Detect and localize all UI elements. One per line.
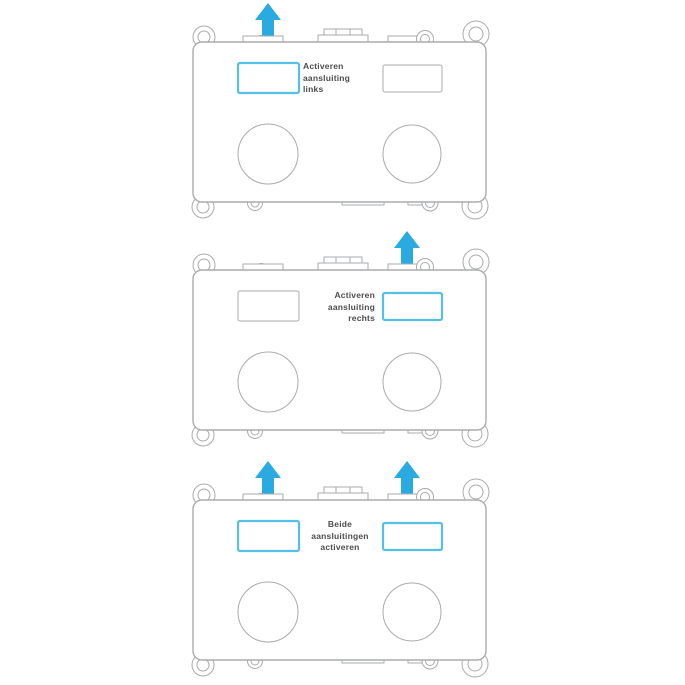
label-activate-left: Activeren aansluiting links [303, 61, 350, 96]
valve-hole-left [238, 124, 298, 184]
valve-body-drawing [172, 458, 517, 685]
label-line: activeren [288, 542, 392, 554]
valve-hole-right [383, 583, 441, 641]
label-activate-right: Activeren aansluiting rechts [267, 290, 375, 325]
diagram-activate-left: Activeren aansluiting links [172, 0, 517, 232]
label-line: aansluitingen [288, 531, 392, 543]
valve-body-drawing [172, 0, 517, 232]
top-terminal-block [318, 257, 368, 271]
valve-hole-left [238, 582, 298, 642]
label-line: rechts [267, 313, 375, 325]
label-line: links [303, 84, 350, 96]
top-terminal-block [318, 487, 368, 501]
valve-hole-right [383, 125, 441, 183]
label-activate-both: Beide aansluitingen activeren [288, 519, 392, 554]
diagram-activate-right: Activeren aansluiting rechts [172, 228, 517, 460]
valve-body-drawing [172, 228, 517, 460]
top-terminal-block [318, 29, 368, 43]
label-line: Activeren [303, 61, 350, 73]
label-line: Beide [288, 519, 392, 531]
diagram-activate-both: Beide aansluitingen activeren [172, 458, 517, 685]
connection-slot-right [383, 65, 442, 92]
connection-slot-right [383, 293, 442, 320]
installation-instruction-sheet: Activeren aansluiting links [0, 0, 685, 685]
label-line: Activeren [267, 290, 375, 302]
label-line: aansluiting [303, 73, 350, 85]
label-line: aansluiting [267, 302, 375, 314]
valve-hole-left [238, 352, 298, 412]
valve-hole-right [383, 353, 441, 411]
connection-slot-left [238, 63, 299, 93]
